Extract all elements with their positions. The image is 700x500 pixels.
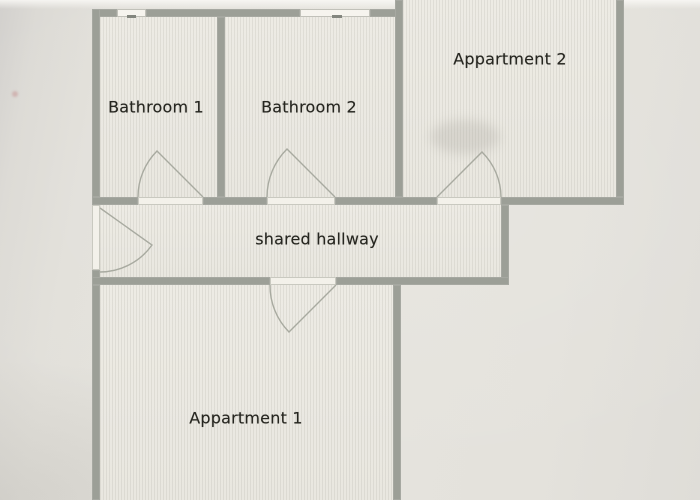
bathroom-1-door-opening: [138, 197, 203, 205]
bathroom-2-window-tick-icon: [332, 15, 342, 18]
hallway-entry-door-opening: [92, 205, 100, 270]
wall-hallway-right-end: [501, 205, 509, 285]
wall-hallway-bottom-segment-1: [92, 277, 270, 285]
wall-appartment1-left: [92, 285, 100, 500]
bathroom-1-label: Bathroom 1: [108, 98, 204, 117]
appartment-2-floor: [403, 0, 616, 197]
wall-top-segment-3: [370, 9, 398, 17]
wall-bathroom1-bathroom2-divider: [217, 17, 225, 197]
floor-plan-canvas: Bathroom 1 Bathroom 2 Appartment 2 share…: [0, 0, 700, 500]
appartment-1-floor: [100, 285, 393, 500]
appartment-2-label: Appartment 2: [453, 50, 566, 69]
wall-mid-segment-2: [203, 197, 267, 205]
bathroom-2-label: Bathroom 2: [261, 98, 357, 117]
wall-appartment2-right: [616, 0, 624, 197]
bathroom-1-window-tick-icon: [127, 15, 136, 18]
wall-mid-segment-1: [92, 197, 138, 205]
wall-mid-segment-4: [501, 197, 624, 205]
shared-hallway-label: shared hallway: [255, 230, 379, 249]
wall-hallway-bottom-segment-2: [336, 277, 509, 285]
wall-bathroom2-appartment2-divider: [395, 0, 403, 197]
wall-top-segment-2: [146, 9, 300, 17]
wall-left-upper: [92, 9, 100, 197]
bathroom-2-door-opening: [267, 197, 335, 205]
appartment-1-door-opening: [270, 277, 336, 285]
appartment-2-door-opening: [437, 197, 501, 205]
photo-dust-spot: [12, 91, 18, 97]
appartment-1-label: Appartment 1: [189, 409, 302, 428]
wall-mid-segment-3: [335, 197, 437, 205]
wall-appartment1-right: [393, 285, 401, 500]
